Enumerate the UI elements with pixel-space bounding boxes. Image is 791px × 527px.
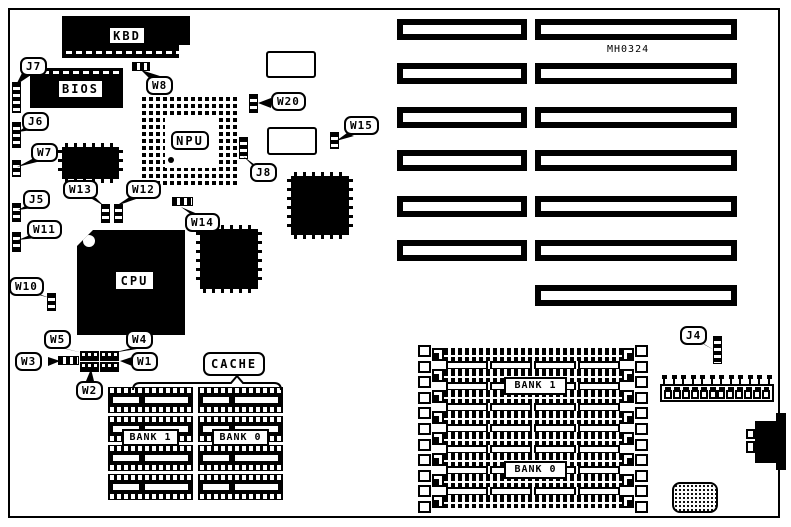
- kbd-chip-dash: [66, 51, 186, 54]
- simm-pin-strip: [444, 495, 622, 508]
- jumper-w13: [101, 204, 110, 223]
- power-socket-hole: [753, 390, 761, 399]
- qfp-leads-bottom: [203, 289, 255, 293]
- power-pin: [691, 375, 696, 379]
- cache-chip-slot: [145, 455, 188, 461]
- simm-frame-rung: [635, 470, 648, 482]
- power-pin: [681, 375, 686, 379]
- cache-chip-slot: [113, 397, 139, 403]
- isa-slot-long: [535, 150, 737, 171]
- cache-chip-slot: [113, 484, 139, 490]
- callout-w12: W12: [126, 180, 161, 199]
- cache-bank1-label: BANK 1: [122, 429, 179, 446]
- simm-frame-rung: [418, 407, 431, 419]
- simm-frame-rung: [635, 485, 648, 497]
- simm-bank1-label: BANK 1: [504, 377, 567, 395]
- power-socket-hole: [735, 390, 743, 399]
- power-socket-hole: [709, 390, 717, 399]
- jumper-block-w5: [80, 351, 99, 361]
- simm-latch-left: [432, 474, 444, 487]
- jumper-j8: [239, 137, 248, 159]
- qfp-leads-right: [258, 232, 262, 286]
- qfp-body: [62, 147, 119, 179]
- simm-latch-left: [432, 432, 444, 445]
- simm-frame-rung: [418, 345, 431, 357]
- simm-frame-rung: [635, 501, 648, 513]
- simm-bank0-label: BANK 0: [504, 461, 567, 479]
- simm-frame-rung: [418, 470, 431, 482]
- simm-frame-right: [635, 345, 648, 513]
- power-socket-hole: [726, 390, 734, 399]
- power-pin: [767, 375, 772, 379]
- crystal-oscillator-2: [267, 127, 317, 155]
- simm-latch-right: [622, 390, 634, 403]
- cache-sram-chip: [108, 445, 193, 471]
- qfp-leads-right: [119, 150, 123, 176]
- power-connector-body: [660, 384, 774, 402]
- isa-slot-long: [535, 285, 737, 306]
- qfp-chip-upper-right: [287, 172, 353, 239]
- power-socket-hole: [682, 390, 690, 399]
- cache-sram-chip: [198, 474, 283, 500]
- callout-w8: W8: [146, 76, 173, 95]
- simm-frame-rung: [635, 454, 648, 466]
- callout-w20: W20: [271, 92, 306, 111]
- isa-slot-short: [397, 19, 527, 40]
- simm-frame-rung: [635, 392, 648, 404]
- simm-latch-left: [432, 369, 444, 382]
- isa-slot-short: [397, 240, 527, 261]
- simm-frame-rung: [635, 407, 648, 419]
- simm-frame-rung: [418, 361, 431, 373]
- power-pin: [757, 375, 762, 379]
- callout-j7: J7: [20, 57, 47, 76]
- power-socket-hole: [664, 390, 672, 399]
- power-pin: [738, 375, 743, 379]
- callout-w15: W15: [344, 116, 379, 135]
- simm-latch-left: [432, 411, 444, 424]
- simm-socket: [432, 348, 634, 361]
- callout-w4: W4: [126, 330, 153, 349]
- simm-pin-strip: [444, 432, 622, 445]
- power-connector: [660, 375, 774, 402]
- simm-latch-right: [622, 453, 634, 466]
- cache-chip-slot: [235, 484, 278, 490]
- bios-label: BIOS: [58, 80, 103, 98]
- power-socket-hole: [691, 390, 699, 399]
- battery: [672, 482, 718, 513]
- callout-w3: W3: [15, 352, 42, 371]
- cache-chip-slot: [203, 455, 229, 461]
- qfp-leads-right: [349, 179, 353, 232]
- keyboard-din-connector-body: [755, 421, 778, 463]
- simm-frame-rung: [418, 376, 431, 388]
- isa-slot-long: [535, 63, 737, 84]
- cache-chip-slot: [113, 455, 139, 461]
- simm-latch-right: [622, 432, 634, 445]
- callout-j8: J8: [250, 163, 277, 182]
- isa-slot-short: [397, 63, 527, 84]
- kbd-chip-notch: [179, 45, 190, 58]
- power-pin: [748, 375, 753, 379]
- power-pin: [700, 375, 705, 379]
- power-pin: [662, 375, 667, 379]
- simm-latch-right: [622, 348, 634, 361]
- cache-chip-slot: [145, 484, 188, 490]
- simm-pin-strip: [444, 348, 622, 361]
- callout-w2: W2: [76, 381, 103, 400]
- simm-frame-rung: [418, 501, 431, 513]
- jumper-block-w4: [100, 351, 119, 361]
- cache-chip-slot: [235, 397, 278, 403]
- simm-frame-rung: [635, 361, 648, 373]
- simm-frame-rung: [635, 439, 648, 451]
- isa-slot-short: [397, 150, 527, 171]
- simm-frame-rung: [418, 454, 431, 466]
- simm-frame-rung: [635, 376, 648, 388]
- cache-chip-slot: [235, 455, 278, 461]
- simm-pin-strip: [444, 411, 622, 424]
- jumper-block-w1: [100, 362, 119, 372]
- simm-socket: [432, 411, 634, 424]
- isa-slot-long: [535, 19, 737, 40]
- simm-socket: [432, 432, 634, 445]
- simm-latch-right: [622, 369, 634, 382]
- callout-w14: W14: [185, 213, 220, 232]
- simm-frame-rung: [635, 345, 648, 357]
- cache-sram-chip: [198, 445, 283, 471]
- simm-frame-left: [418, 345, 431, 513]
- power-socket-hole: [744, 390, 752, 399]
- power-socket-hole: [717, 390, 725, 399]
- cache-bank0-label: BANK 0: [212, 429, 269, 446]
- simm-socket-block: [418, 343, 648, 515]
- kbd-label: KBD: [109, 27, 145, 44]
- cache-chip-slot: [145, 397, 188, 403]
- callout-j4: J4: [680, 326, 707, 345]
- crystal-oscillator-1: [266, 51, 316, 78]
- callout-w1: W1: [131, 352, 158, 371]
- callout-w10: W10: [9, 277, 44, 296]
- npu-label: NPU: [171, 131, 209, 150]
- isa-slot-short: [397, 107, 527, 128]
- simm-frame-rung: [418, 423, 431, 435]
- motherboard-diagram: KBD BIOS NPU CPU: [0, 0, 791, 527]
- din-pin-header-1: [746, 429, 755, 439]
- isa-slot-short: [397, 196, 527, 217]
- simm-latch-right: [622, 411, 634, 424]
- callout-w7: W7: [31, 143, 58, 162]
- callout-w5: W5: [44, 330, 71, 349]
- npu-pin1-dot: [168, 157, 174, 163]
- power-connector-pins: [662, 375, 772, 384]
- simm-latch-right: [622, 495, 634, 508]
- power-socket-hole: [673, 390, 681, 399]
- cache-sram-chip: [108, 474, 193, 500]
- jumper-j4: [713, 336, 722, 364]
- simm-frame-rung: [635, 423, 648, 435]
- simm-frame-rung: [418, 439, 431, 451]
- callout-j5: J5: [23, 190, 50, 209]
- jumper-w11: [12, 232, 21, 252]
- simm-latch-left: [432, 348, 444, 361]
- jumper-j6: [12, 122, 21, 148]
- qfp-chip-mid-right: [196, 225, 262, 293]
- jumper-w10: [47, 293, 56, 311]
- callout-w13: W13: [63, 180, 98, 199]
- isa-slot-long: [535, 196, 737, 217]
- cache-chip-slot: [203, 484, 229, 490]
- simm-latch-left: [432, 453, 444, 466]
- qfp-body: [200, 229, 258, 289]
- jumper-w12: [114, 204, 123, 223]
- power-pin: [710, 375, 715, 379]
- jumper-w7: [12, 160, 21, 177]
- simm-socket: [432, 495, 634, 508]
- cache-sram-chip: [198, 387, 283, 413]
- isa-slot-long: [535, 107, 737, 128]
- cache-title: CACHE: [203, 352, 265, 376]
- jumper-j5: [12, 203, 21, 222]
- power-socket-hole: [762, 390, 770, 399]
- cache-chip-slot: [203, 397, 229, 403]
- qfp-chip-left: [58, 143, 123, 183]
- simm-latch-left: [432, 390, 444, 403]
- simm-latch-right: [622, 474, 634, 487]
- power-socket-hole: [700, 390, 708, 399]
- jumper-w8: [132, 62, 150, 71]
- jumper-w20: [249, 94, 258, 113]
- cpu-label: CPU: [115, 271, 154, 290]
- cache-sram-chip: [108, 387, 193, 413]
- jumper-w3: [58, 356, 79, 365]
- isa-slot-long: [535, 240, 737, 261]
- din-pin-header-2: [746, 441, 755, 453]
- jumper-j7: [12, 82, 21, 113]
- qfp-leads-bottom: [294, 235, 346, 239]
- simm-latch-left: [432, 495, 444, 508]
- jumper-w14: [172, 197, 193, 206]
- jumper-w15: [330, 132, 339, 149]
- power-pin: [672, 375, 677, 379]
- callout-j6: J6: [22, 112, 49, 131]
- callout-w11: W11: [27, 220, 62, 239]
- simm-frame-rung: [418, 485, 431, 497]
- part-number: MH0324: [607, 45, 649, 55]
- qfp-body: [291, 176, 349, 235]
- power-pin: [719, 375, 724, 379]
- jumper-block-w2: [80, 362, 99, 372]
- simm-frame-rung: [418, 392, 431, 404]
- power-pin: [729, 375, 734, 379]
